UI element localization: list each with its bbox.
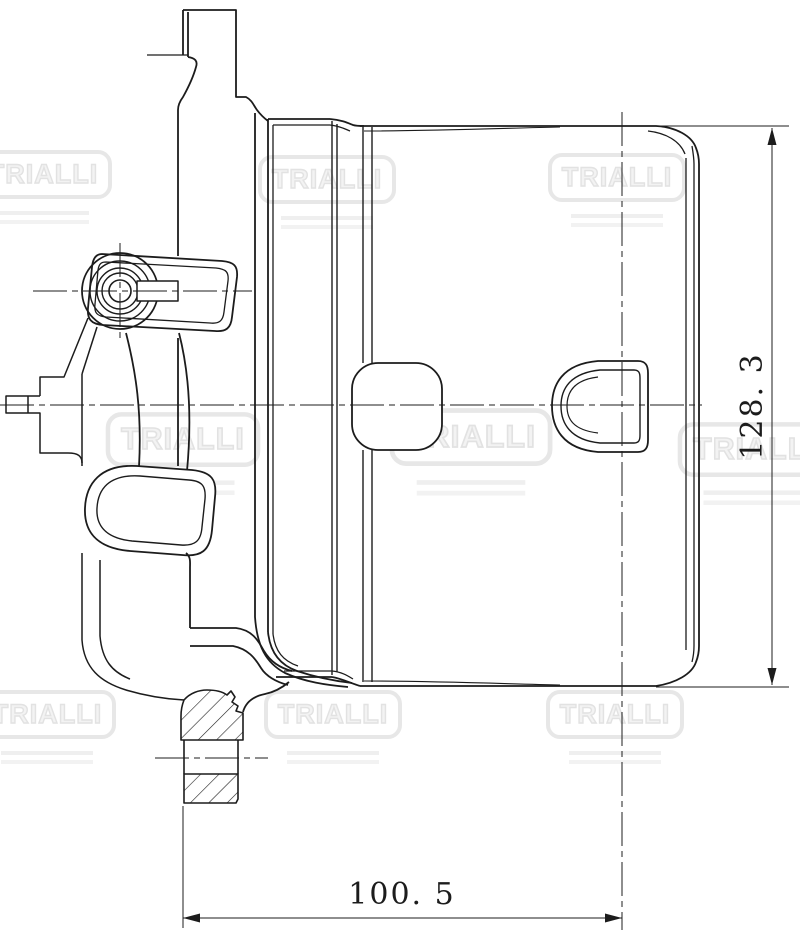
top-mounting-tab bbox=[147, 10, 268, 256]
arrowhead-up bbox=[768, 128, 777, 145]
dimension-height: 128. 3 bbox=[656, 126, 789, 687]
dimension-width: 100. 5 bbox=[183, 806, 622, 928]
lower-tab bbox=[85, 466, 215, 628]
arrowhead-down bbox=[768, 668, 777, 685]
arrowhead-right bbox=[605, 914, 622, 923]
d-shaped-tab bbox=[552, 361, 648, 452]
part-technical-drawing: 128. 3 100. 5 bbox=[0, 0, 800, 940]
bracket-arm bbox=[126, 333, 189, 471]
drawing-canvas: TRIALLI TRIALLI TRIALLI TRIALLI TRIALLI … bbox=[0, 0, 800, 940]
width-dimension-label: 100. 5 bbox=[348, 877, 455, 912]
center-square-tab bbox=[352, 363, 442, 450]
arrowhead-left bbox=[183, 914, 200, 923]
height-dimension-label: 128. 3 bbox=[735, 352, 770, 459]
mounting-flange-section bbox=[181, 690, 243, 803]
bushing-boss bbox=[82, 253, 237, 331]
